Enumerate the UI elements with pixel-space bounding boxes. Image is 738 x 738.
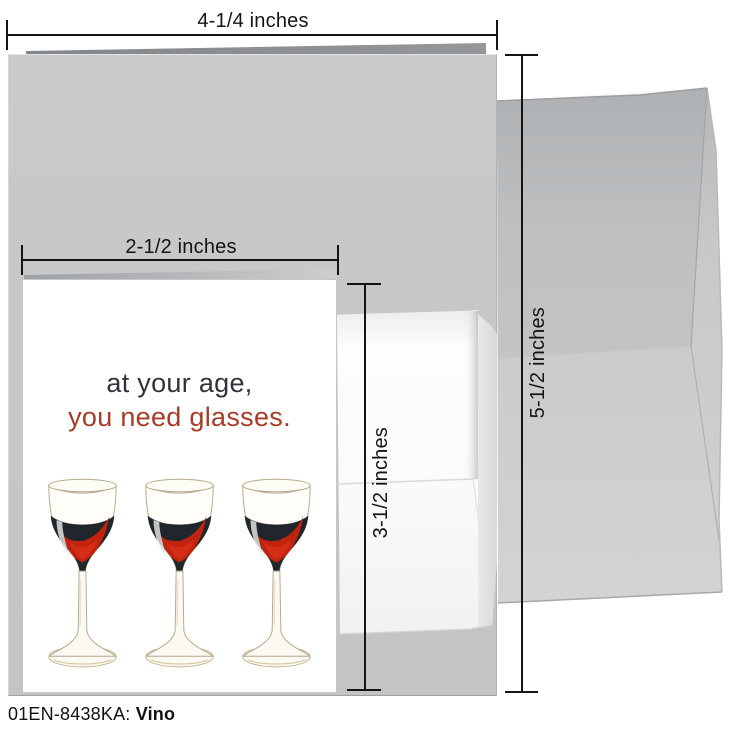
card-message-line1: at your age, — [23, 366, 336, 400]
measure-large-height-label-box: 5-1/2 inches — [526, 300, 550, 426]
measure-small-width-label: 2-1/2 inches — [125, 236, 236, 259]
measure-large-width-label: 4-1/4 inches — [197, 10, 308, 33]
measure-large-height-tick-bottom — [505, 691, 538, 693]
measure-large-width-tick-left — [6, 20, 8, 50]
measure-large-height-tick-top — [505, 54, 538, 56]
measure-large-height-line — [521, 54, 523, 693]
wine-glasses-row — [23, 472, 336, 678]
measure-large-width-line — [7, 34, 498, 36]
measure-large-width-tick-right — [496, 20, 498, 50]
measure-small-height-line — [364, 284, 366, 691]
measure-small-width-tick-right — [337, 245, 339, 275]
wine-glass-icon — [131, 472, 228, 676]
measure-small-width-tick-left — [21, 245, 23, 275]
small-envelope — [335, 306, 501, 638]
card-message: at your age, you need glasses. — [23, 366, 336, 434]
product-mockup: at your age, you need glasses. 4-1/4 inc… — [0, 0, 738, 738]
product-caption: 01EN-8438KA: Vino — [8, 704, 175, 725]
product-code: 01EN-8438KA: — [8, 704, 130, 724]
measure-small-height-tick-top — [347, 283, 381, 285]
wine-glass-icon — [228, 472, 325, 676]
measure-small-height-label-box: 3-1/2 inches — [369, 420, 393, 546]
card-message-line2: you need glasses. — [23, 400, 336, 434]
product-name: Vino — [136, 704, 175, 724]
small-envelope-flap-shadow — [463, 311, 478, 481]
wine-glass-icon — [34, 472, 131, 676]
measure-large-height-label: 5-1/2 inches — [527, 307, 550, 418]
small-card: at your age, you need glasses. — [22, 279, 337, 693]
measure-small-width-line — [22, 259, 339, 261]
measure-small-height-tick-bottom — [347, 689, 381, 691]
measure-small-height-label: 3-1/2 inches — [370, 427, 393, 538]
